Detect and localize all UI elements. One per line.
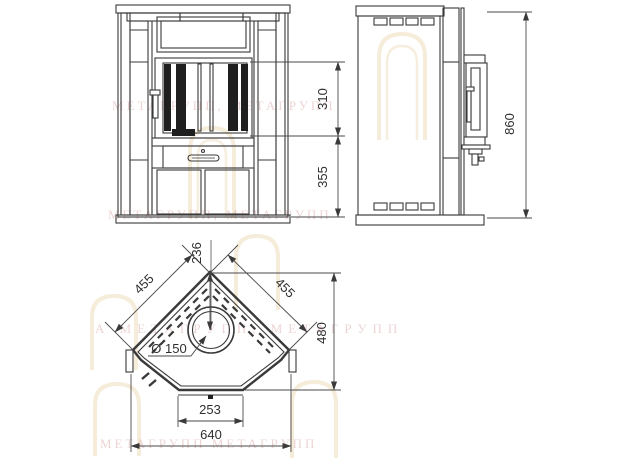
extension-line [210,245,238,273]
dim-label-base-height: 355 [315,166,330,188]
dim-label-left-side: 455 [131,271,157,297]
dim-label-overall-height: 860 [502,113,517,135]
door-glass-bar [176,64,186,131]
front-view: 310 355 [116,5,345,223]
vent-slot [406,18,418,25]
drawing-svg: МЕТАГРУПП, МЕТАГРУПП МЕТАГРУПП, МЕТАГРУП… [0,0,624,460]
stove-technical-drawing: МЕТАГРУПП, МЕТАГРУПП МЕТАГРУПП, МЕТАГРУП… [0,0,624,460]
side-bottom-cap [356,215,484,225]
side-rear-column [443,8,459,215]
watermark-text: А МЕТАГРУПП, МЕТАГРУПП [95,321,403,336]
hatch-row [147,289,207,349]
side-view: 860 [356,6,532,225]
drawer-knob [202,150,205,153]
side-door-handle-hook [466,87,474,91]
vent-slot [421,18,434,25]
brand-arch-logo [387,46,417,140]
watermark-text: МЕТАГРУПП, МЕТАГРУПП [112,98,336,113]
leader-line-flue [191,336,206,356]
vent-slot [390,18,403,25]
front-left-strip [121,13,130,215]
dim-label-flue-diameter: Ø 150 [151,341,186,356]
hood-panel-inner [161,21,246,48]
side-top-cap [356,6,444,16]
side-panel-right [289,350,296,372]
latch-foot [479,157,484,161]
dim-label-depth: 480 [314,322,329,344]
latch-bracket [469,149,482,154]
door-glass-bar [228,64,238,131]
door-bottom-step [464,137,485,145]
vent-slot [406,203,418,210]
dim-label-back-to-flue: 236 [189,242,204,264]
hinge-pin [142,373,149,379]
door-glass-bar [241,64,248,131]
brand-arch-logo [190,128,234,218]
dim-label-front-width: 253 [199,402,221,417]
vent-slot [390,203,403,210]
front-right-column [258,21,276,215]
door-handle [153,94,158,118]
door-handle-hook [150,90,160,95]
front-outer-frame [118,13,288,217]
door-top-step [464,55,485,63]
vent-slot [374,18,387,25]
dim-label-firebox-height: 310 [315,88,330,110]
vent-slot [374,203,387,210]
hood-panel [157,17,250,52]
front-top-cap [116,5,290,13]
door-vent-slot [172,129,195,136]
hinge-pin [149,380,156,386]
front-center-tab [208,395,213,399]
latch-bar [462,145,490,149]
hatch-row [215,289,275,349]
front-right-strip [276,13,285,215]
latch-stem [472,154,478,165]
side-door-handle [467,91,471,122]
side-front-wall [461,8,464,215]
dim-label-overall-width: 640 [200,427,222,442]
side-panel-left [126,350,133,372]
front-left-column [130,21,148,215]
vent-slot [421,203,434,210]
door-glass-bar [164,64,171,131]
